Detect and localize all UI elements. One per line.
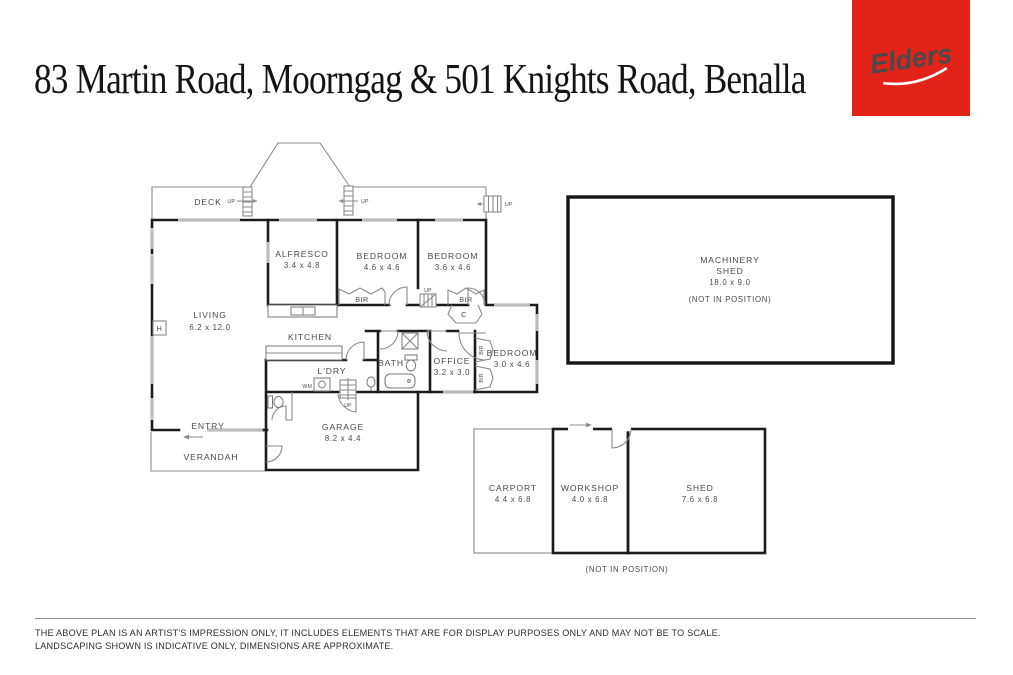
room-dims-bedroom3: 3.0 x 4.6 [494,360,530,369]
disclaimer-line-1: THE ABOVE PLAN IS AN ARTIST'S IMPRESSION… [35,628,721,638]
bir-label: BIR [355,295,368,304]
bath-basin [367,377,375,391]
room-label-verandah: VERANDAH [184,452,239,462]
door-arc-laundry [346,342,364,360]
carport-dims: 4.4 x 6.8 [495,495,531,504]
room-label-bedroom2: BEDROOM [428,251,479,261]
page-root: 83 Martin Road, Moorngag & 501 Knights R… [0,0,1013,675]
room-label-deck: DECK [194,197,221,207]
up-label: UP [227,199,235,205]
floorplan-canvas: UP UP UP [0,0,1013,675]
wc-partition [286,392,292,420]
wm-label: WM [302,384,312,390]
door-arc-entry [183,435,203,440]
cupboard-label: C [461,310,467,319]
carport-label: CARPORT [489,483,537,493]
hws-label: H [157,324,163,333]
shed-dims: 7.6 x 6.8 [682,495,718,504]
hall-stairs: UP [420,288,436,307]
workshop-dims: 4.0 x 6.8 [572,495,608,504]
room-label-bedroom1: BEDROOM [357,251,408,261]
bathtub [385,374,415,388]
up-label: UP [361,199,369,205]
room-label-bath: BATH [378,358,404,368]
room-label-alfresco: ALFRESCO [275,249,329,259]
door-arc-bedroom1 [389,287,407,305]
wc-toilet [268,396,283,408]
room-label-ldry: L'DRY [318,366,347,376]
bir-robe-bedroom1: BIR [339,288,385,305]
outbuildings-group-note: (NOT IN POSITION) [586,565,669,574]
machinery-shed: MACHINERY SHED 18.0 x 9.0 (NOT IN POSITI… [568,197,893,363]
room-dims-bedroom1: 4.6 x 4.6 [364,263,400,272]
door-arc-wc [272,406,286,420]
room-dims-bedroom2: 3.6 x 4.6 [435,263,471,272]
room-dims-alfresco: 3.4 x 4.8 [284,261,320,270]
bir-robe-bedroom2: BIR [448,288,484,305]
door-arc-garage-verandah [266,446,282,462]
bir-label: BIR [479,345,485,354]
room-dims-office: 3.2 x 3.0 [434,368,470,377]
hot-water-unit: H [153,321,166,335]
workshop-label: WORKSHOP [561,483,619,493]
bir-robe-bedroom3-lower: BIR [475,366,493,390]
machinery-shed-note: (NOT IN POSITION) [689,295,772,304]
carport: CARPORT 4.4 x 6.8 [474,429,553,553]
footer-divider [35,618,976,619]
room-label-garage: GARAGE [322,422,364,432]
kitchen-island [266,346,342,360]
shed: SHED 7.6 x 6.8 [612,429,765,553]
machinery-shed-label-1: MACHINERY [700,255,760,265]
up-label: UP [344,403,352,409]
kitchen-counter [268,305,337,317]
shed-label: SHED [686,483,713,493]
machinery-shed-dims: 18.0 x 9.0 [709,278,750,287]
room-label-bedroom3: BEDROOM [487,348,538,358]
bath-toilet [405,355,417,371]
door-arc-bath [380,331,398,349]
workshop: WORKSHOP 4.0 x 6.8 [553,423,628,553]
washing-machine: WM [302,378,330,391]
deck-outline [152,143,486,220]
room-dims-garage: 8.2 x 4.4 [325,434,361,443]
bir-label: BIR [479,373,485,382]
room-label-living: LIVING [193,310,227,320]
bath-shower [402,333,418,349]
room-label-entry: ENTRY [191,421,224,431]
disclaimer-line-2: LANDSCAPING SHOWN IS INDICATIVE ONLY, DI… [35,641,393,651]
room-label-office: OFFICE [434,356,471,366]
cupboard-c: C [448,305,482,323]
room-dims-living: 6.2 x 12.0 [189,323,230,332]
machinery-shed-label-2: SHED [716,266,743,276]
bir-label: BIR [459,295,472,304]
up-label: UP [505,202,513,208]
room-label-kitchen: KITCHEN [288,332,332,342]
up-label: UP [424,288,432,294]
